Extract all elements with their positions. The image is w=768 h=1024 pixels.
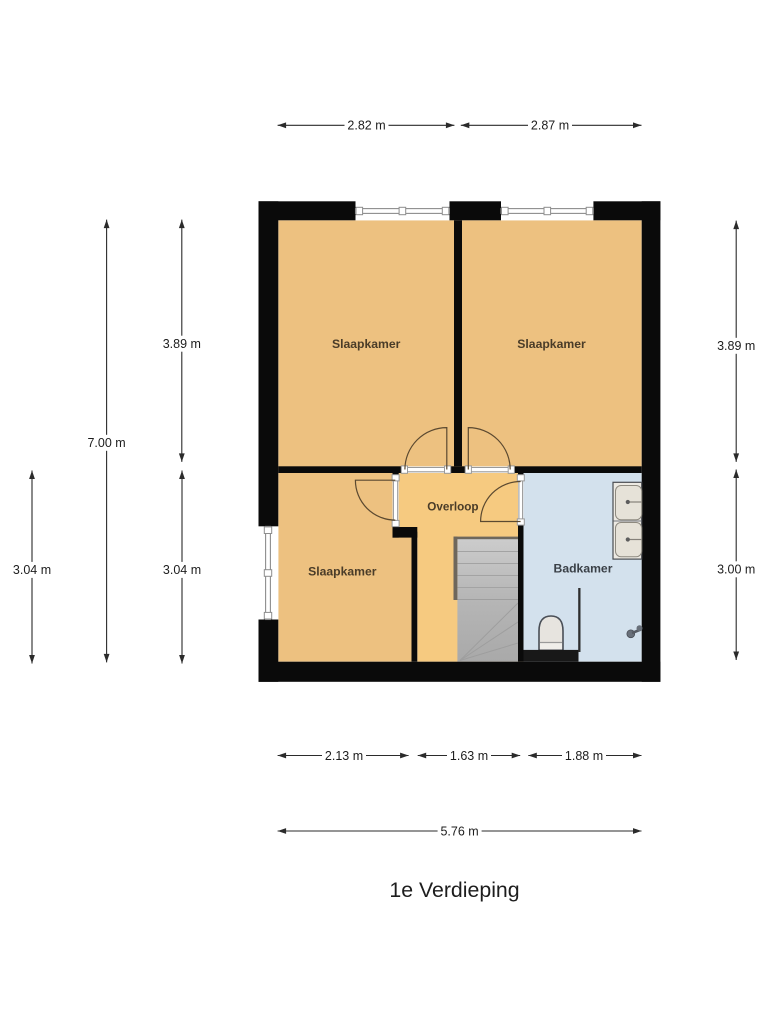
svg-text:Slaapkamer: Slaapkamer (332, 337, 401, 351)
svg-text:1e Verdieping: 1e Verdieping (389, 878, 519, 902)
svg-text:2.82 m: 2.82 m (347, 119, 385, 133)
svg-text:3.89 m: 3.89 m (717, 339, 755, 353)
svg-text:2.87 m: 2.87 m (531, 119, 569, 133)
svg-text:5.76 m: 5.76 m (440, 824, 478, 838)
svg-text:3.04 m: 3.04 m (163, 563, 201, 577)
svg-text:Slaapkamer: Slaapkamer (308, 564, 377, 578)
svg-text:1.88 m: 1.88 m (565, 749, 603, 763)
svg-text:Slaapkamer: Slaapkamer (517, 337, 586, 351)
svg-text:7.00 m: 7.00 m (87, 436, 125, 450)
svg-text:Badkamer: Badkamer (554, 562, 613, 576)
svg-text:1.63 m: 1.63 m (450, 749, 488, 763)
svg-text:3.00 m: 3.00 m (717, 563, 755, 577)
svg-text:Overloop: Overloop (427, 501, 478, 514)
svg-text:2.13 m: 2.13 m (325, 749, 363, 763)
svg-text:3.89 m: 3.89 m (163, 337, 201, 351)
svg-text:3.04 m: 3.04 m (13, 563, 51, 577)
